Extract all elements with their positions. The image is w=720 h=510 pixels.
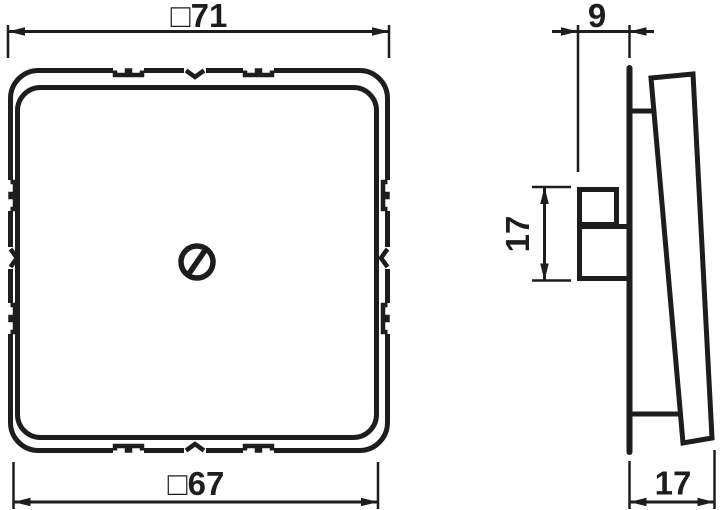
dim-label-plug-height: 17 bbox=[499, 216, 536, 253]
arrowhead-left bbox=[630, 498, 647, 507]
front-view: □71 □67 bbox=[6, 0, 392, 509]
dim-inner-width: □67 bbox=[14, 462, 379, 509]
center-plug-lower bbox=[580, 227, 630, 279]
cover-plate-dimension-drawing: □71 □67 9 bbox=[0, 0, 720, 510]
arrowhead-right bbox=[361, 498, 378, 507]
dim-label-front-depth: 9 bbox=[588, 0, 606, 34]
arrowhead-left bbox=[14, 498, 31, 507]
dim-label-outer-width: □71 bbox=[171, 0, 228, 34]
arrowhead-left bbox=[8, 27, 25, 36]
arrowhead-right bbox=[372, 27, 389, 36]
screw-slot bbox=[188, 249, 206, 275]
dim-plug-height: 17 bbox=[499, 187, 571, 281]
screw-head-icon bbox=[181, 246, 213, 278]
arrowhead-down bbox=[540, 264, 549, 281]
dim-front-depth: 9 bbox=[552, 0, 654, 172]
center-plug-upper bbox=[580, 190, 617, 225]
cover-plate-profile bbox=[651, 74, 712, 443]
arrowhead-up bbox=[540, 187, 549, 204]
arrowhead-right bbox=[698, 498, 715, 507]
side-view: 9 17 17 bbox=[499, 0, 715, 509]
dim-label-total-depth: 17 bbox=[655, 465, 692, 502]
dim-total-depth: 17 bbox=[630, 450, 715, 509]
arrowhead-left bbox=[561, 27, 578, 36]
technical-drawing-canvas: □71 □67 9 bbox=[0, 0, 720, 510]
dim-label-inner-width: □67 bbox=[168, 465, 225, 502]
dim-outer-width: □71 bbox=[8, 0, 389, 58]
arrowhead-right bbox=[630, 27, 647, 36]
